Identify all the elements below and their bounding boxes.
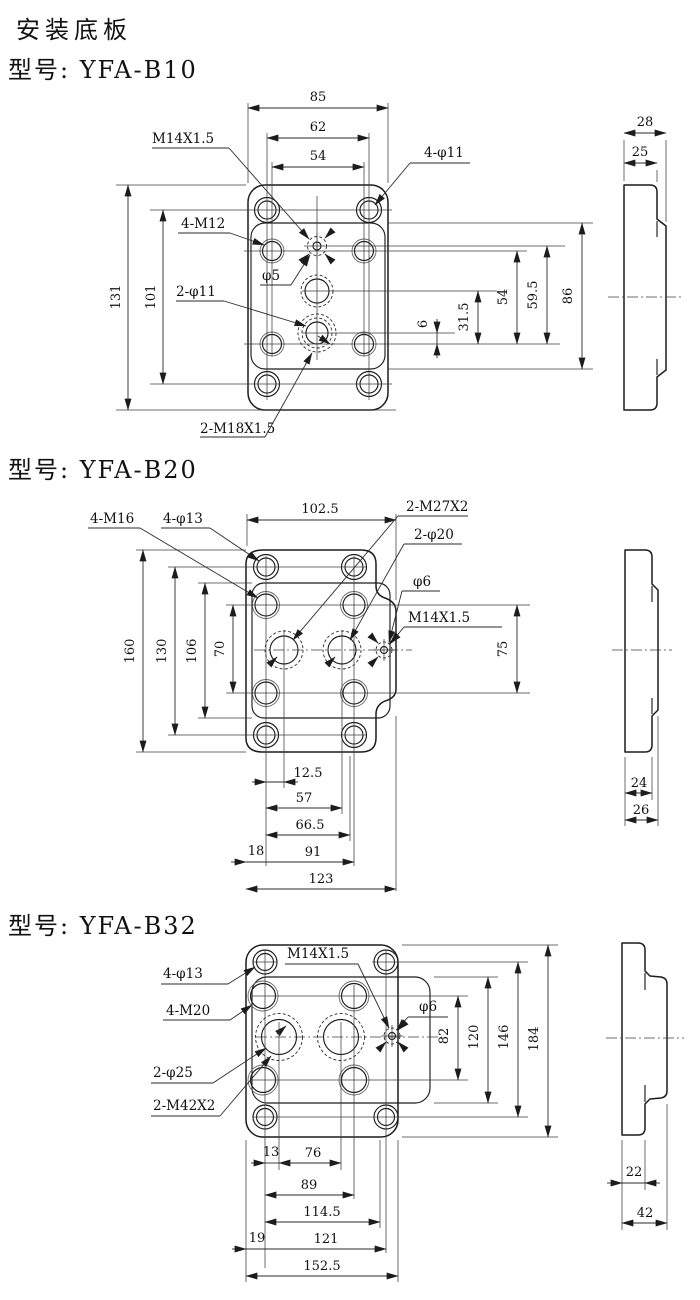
b20-label-phi6: φ6 [413, 574, 431, 590]
b20-dim-12-5: 12.5 [294, 766, 323, 781]
b10-labels: M14X1.5 4-φ11 4-M12 φ5 2-φ11 2-M18X1.5 [152, 131, 470, 437]
b20-dim-106: 106 [185, 639, 200, 664]
b10-side-view: 28 25 [608, 115, 682, 410]
b20-label-2phi20: 2-φ20 [414, 527, 454, 543]
b10-label-2phi11: 2-φ11 [176, 284, 216, 300]
b20-dim-91: 91 [305, 845, 322, 860]
b20-dim-160: 160 [123, 639, 138, 664]
b32-dim-121: 121 [314, 1232, 339, 1247]
b10-label-m14x15: M14X1.5 [152, 131, 214, 147]
b10-dim-101: 101 [144, 285, 159, 310]
b10-valve-face [251, 223, 385, 369]
b10-dim-54-top: 54 [310, 149, 327, 164]
b32-dim-184: 184 [527, 1027, 542, 1052]
drawing-canvas: 85 62 54 131 101 6 31.5 54 59.5 [0, 0, 700, 1300]
b32-label-phi6: φ6 [419, 999, 437, 1015]
b20-dim-130: 130 [155, 639, 170, 664]
b20-dim-66-5: 66.5 [296, 818, 325, 833]
b20-dim-70: 70 [213, 641, 228, 658]
b32-dimensions: 82 120 146 184 13 76 89 114.5 19 [232, 945, 548, 1276]
b10-m12-holes [260, 239, 376, 356]
b10-dim-62: 62 [310, 120, 327, 135]
b10-front-view: 85 62 54 131 101 6 31.5 54 59.5 [109, 90, 593, 437]
b10-dim-6: 6 [416, 320, 431, 328]
b32-side-view: 22 42 [606, 943, 684, 1230]
b20-label-m14x15: M14X1.5 [408, 610, 470, 626]
b20-dim-123: 123 [309, 872, 334, 887]
b32-dim-120: 120 [467, 1025, 482, 1050]
b10-dim-131: 131 [109, 285, 124, 310]
b10-side-dim-25: 25 [632, 145, 649, 160]
b10-dim-86: 86 [561, 288, 576, 305]
b10-label-2m18x15: 2-M18X1.5 [200, 421, 275, 437]
b32-dim-152-5: 152.5 [303, 1259, 340, 1274]
b20-dim-18: 18 [248, 844, 265, 859]
b32-side-dim-42: 42 [637, 1206, 654, 1221]
b20-side-view: 24 26 [612, 550, 672, 826]
b20-side-dim-26: 26 [633, 803, 650, 818]
b10-label-4m12: 4-M12 [181, 216, 225, 232]
b32-dim-13: 13 [263, 1145, 280, 1160]
b10-side-dim-28: 28 [637, 115, 654, 130]
b32-dim-114-5: 114.5 [303, 1205, 340, 1220]
b32-m20-holes [248, 981, 369, 1095]
b32-construction-lines [246, 945, 558, 1282]
b20-dimensions: 102.5 160 130 106 70 75 12.5 57 66.5 [123, 502, 517, 889]
b10-dim-59-5: 59.5 [526, 281, 541, 310]
b32-dim-89: 89 [301, 1178, 318, 1193]
b32-labels: M14X1.5 4-φ13 4-M20 2-φ25 2-M42X2 φ6 [151, 946, 448, 1116]
b32-label-2m42x2: 2-M42X2 [153, 1098, 215, 1114]
b10-dim-85: 85 [310, 90, 327, 105]
b10-label-4phi11: 4-φ11 [424, 145, 464, 161]
technical-drawing-page: 安装底板 型号: YFA-B10 型号: YFA-B20 型号: YFA-B32 [0, 0, 700, 1300]
b20-front-view: 102.5 160 130 106 70 75 12.5 57 66.5 [88, 499, 530, 891]
b10-label-phi5: φ5 [262, 268, 280, 284]
b20-label-4m16: 4-M16 [90, 511, 134, 527]
b20-label-2m27x2: 2-M27X2 [406, 499, 468, 515]
b20-side-dim-24: 24 [631, 776, 648, 791]
b10-construction-lines [116, 103, 593, 410]
b32-dim-19: 19 [249, 1231, 266, 1246]
b10-dim-54-right: 54 [496, 289, 511, 306]
b20-side-profile [625, 550, 658, 752]
b32-dim-82: 82 [437, 1028, 452, 1045]
b20-dim-57: 57 [296, 791, 313, 806]
b32-label-4m20: 4-M20 [166, 1003, 210, 1019]
b20-dim-75: 75 [496, 641, 511, 658]
b20-dim-102-5: 102.5 [301, 502, 338, 517]
b10-dim-31-5: 31.5 [457, 303, 472, 332]
b20-construction-lines [136, 514, 530, 891]
b32-label-2phi25: 2-φ25 [153, 1065, 193, 1081]
b20-labels: 4-M16 4-φ13 2-M27X2 2-φ20 φ6 M14X1.5 [88, 499, 502, 644]
b10-side-profile [624, 185, 666, 410]
b32-front-view: 82 120 146 184 13 76 89 114.5 19 [151, 945, 558, 1282]
b20-plate-outline [246, 550, 396, 752]
b32-pilot-hole [379, 1023, 405, 1049]
b32-dim-146: 146 [497, 1025, 512, 1050]
b32-label-4phi13: 4-φ13 [163, 966, 203, 982]
b32-label-m14x15: M14X1.5 [287, 946, 349, 962]
b32-side-profile [622, 943, 667, 1135]
b10-corner-holes [255, 198, 382, 397]
b20-valve-face [252, 583, 390, 718]
b32-side-dim-22: 22 [626, 1165, 643, 1180]
b32-dim-76: 76 [305, 1146, 322, 1161]
b20-label-4phi13: 4-φ13 [163, 511, 203, 527]
